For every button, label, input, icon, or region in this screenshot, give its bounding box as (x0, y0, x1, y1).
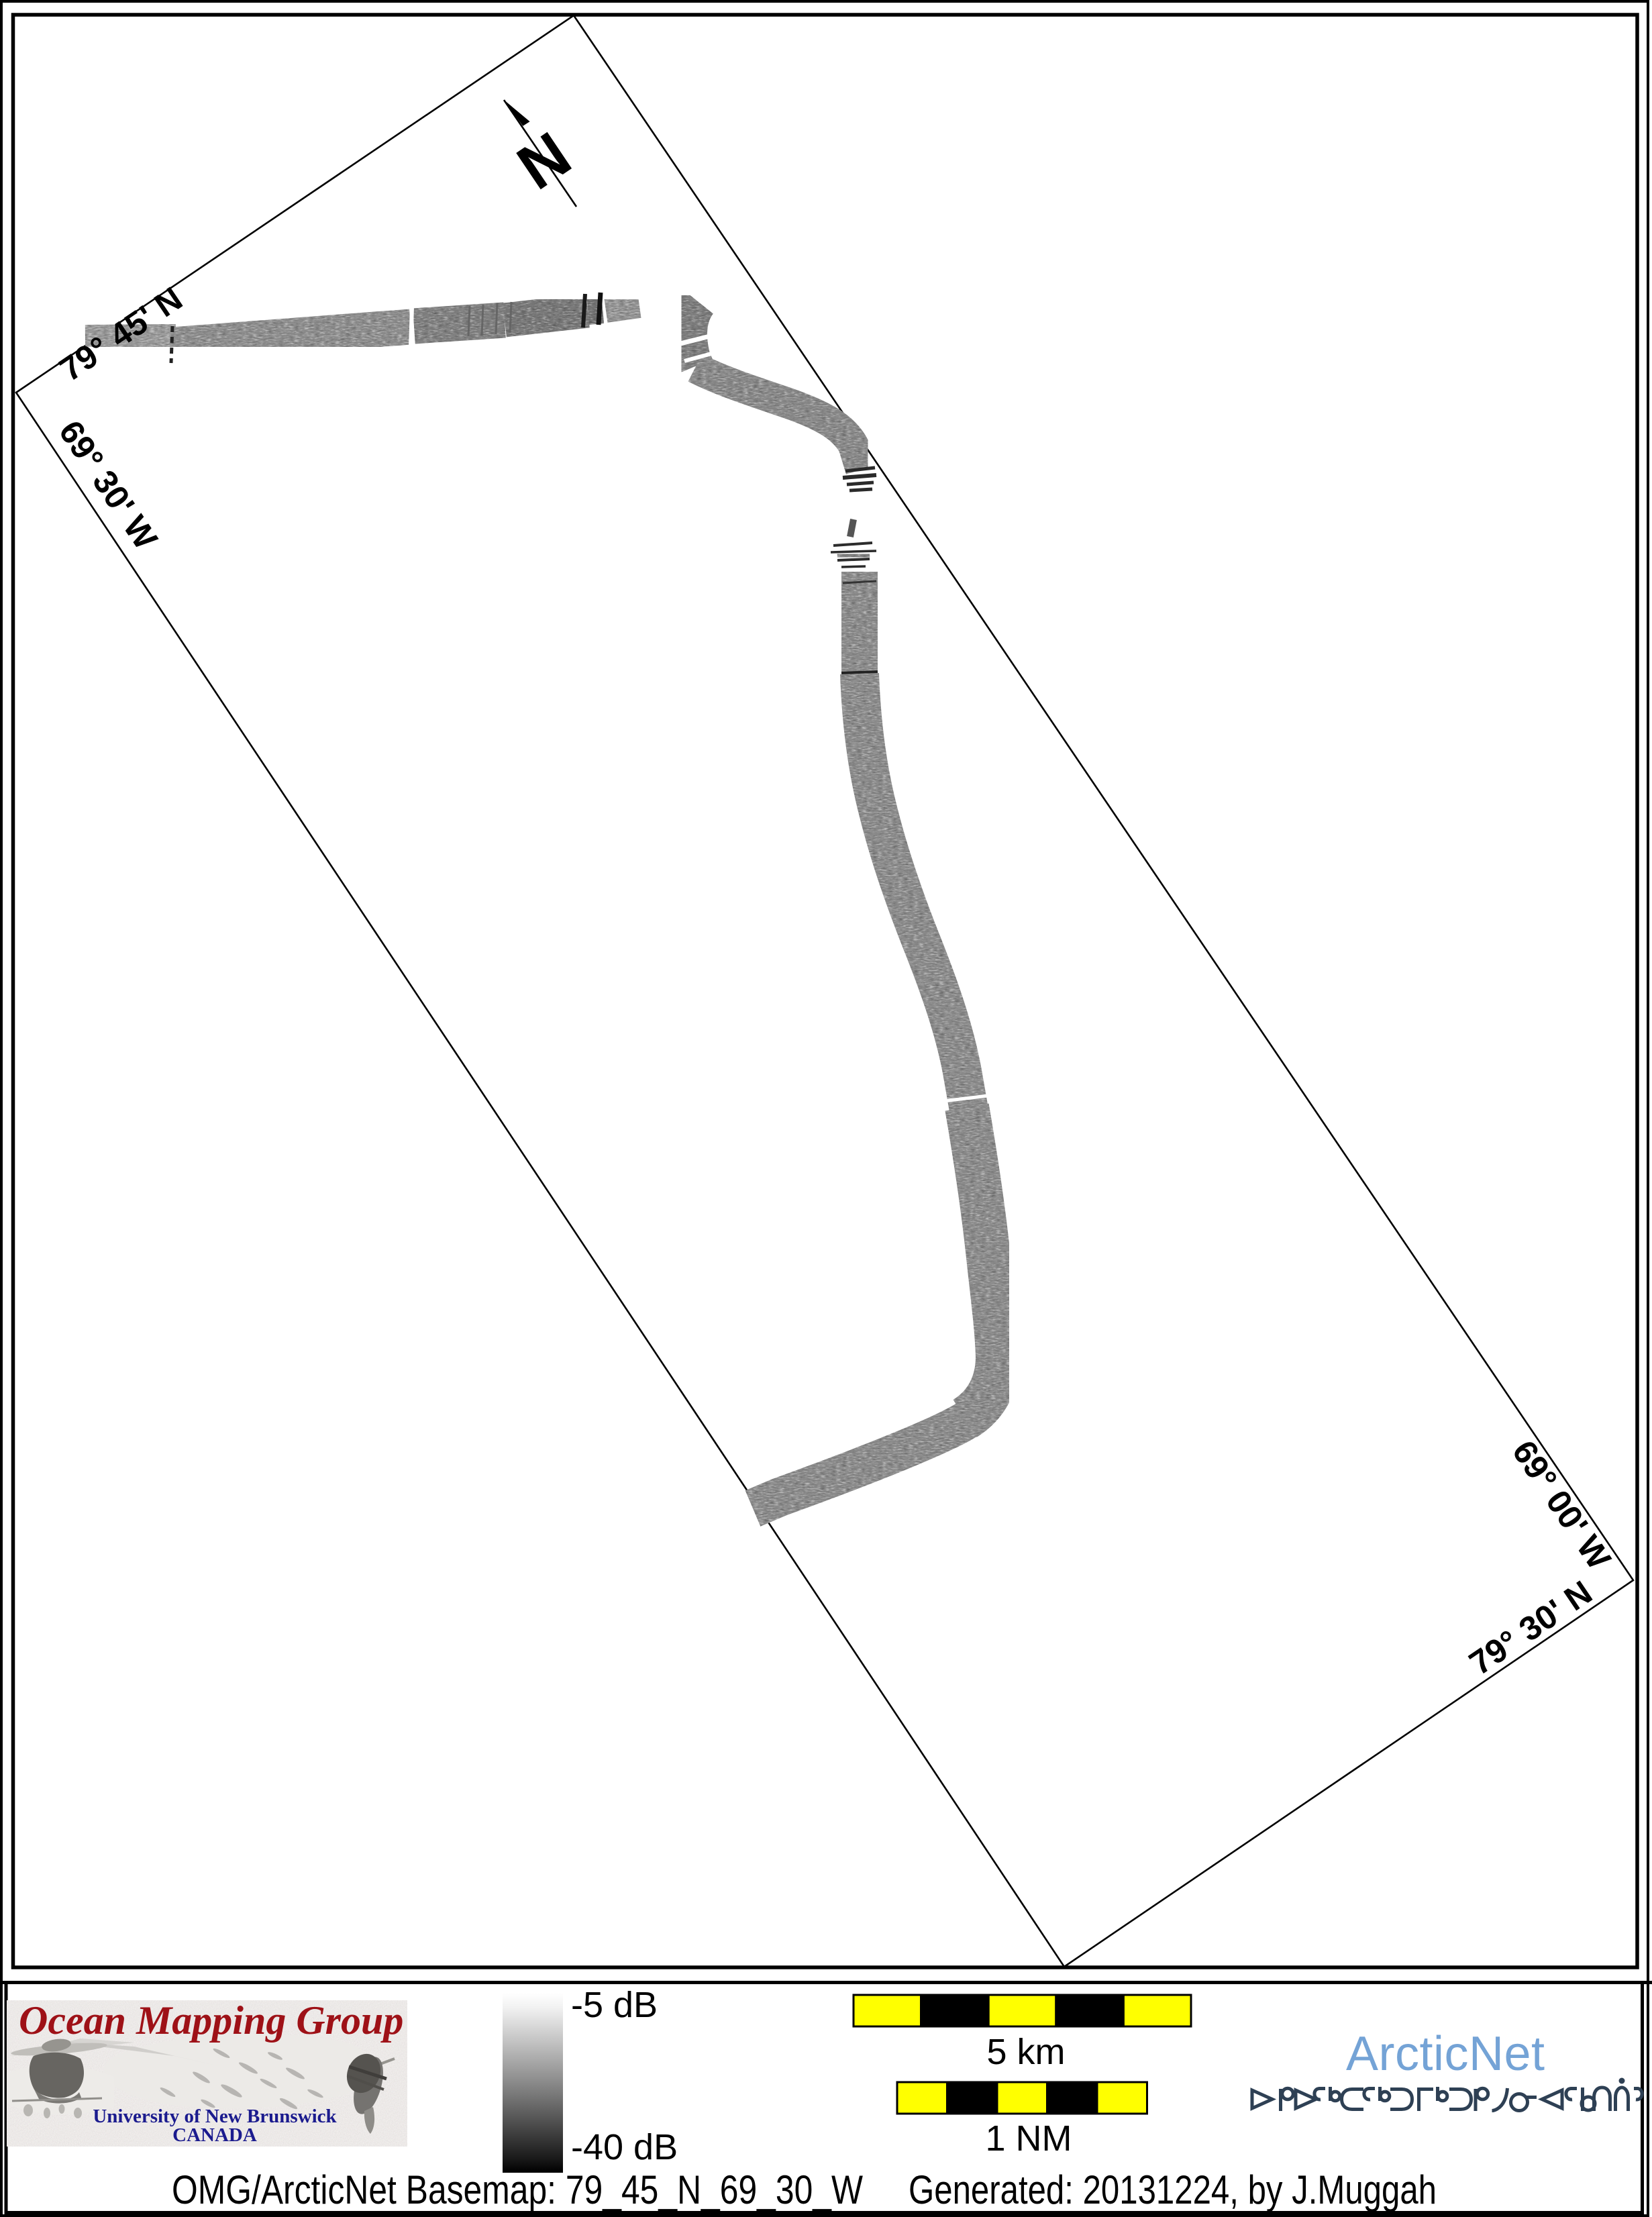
svg-text:1 NM: 1 NM (985, 2118, 1072, 2159)
svg-text:-40 dB: -40 dB (571, 2127, 678, 2167)
svg-text:Ocean Mapping Group: Ocean Mapping Group (19, 1998, 403, 2043)
svg-text:-5 dB: -5 dB (571, 1985, 658, 2025)
svg-text:Generated: 20131224, by J.Mugg: Generated: 20131224, by J.Muggah (909, 2167, 1437, 2212)
svg-text:OMG/ArcticNet Basemap: 79_45_N: OMG/ArcticNet Basemap: 79_45_N_69_30_W (172, 2167, 863, 2212)
svg-text:CANADA: CANADA (172, 2124, 257, 2146)
svg-text:ArcticNet: ArcticNet (1346, 2027, 1545, 2081)
svg-text:5 km: 5 km (986, 2032, 1065, 2072)
